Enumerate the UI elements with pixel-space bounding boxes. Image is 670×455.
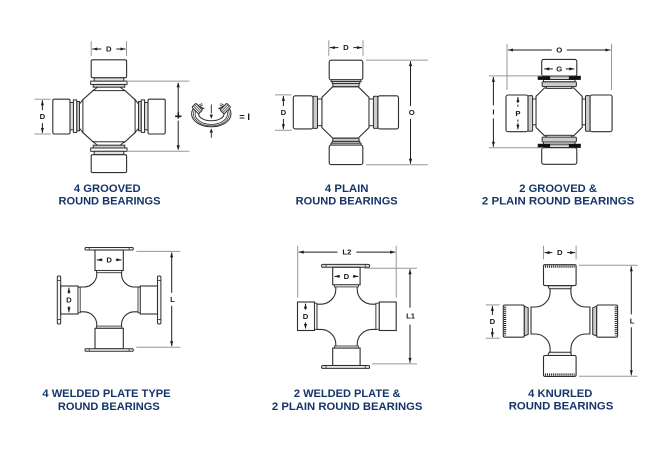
svg-text:4 WELDED PLATE TYPE: 4 WELDED PLATE TYPE — [42, 388, 170, 400]
svg-text:I: I — [492, 108, 494, 117]
svg-text:D: D — [106, 256, 112, 265]
svg-text:2 GROOVED &: 2 GROOVED & — [519, 183, 597, 195]
svg-text:ROUND BEARINGS: ROUND BEARINGS — [296, 196, 398, 208]
svg-text:L1: L1 — [406, 312, 416, 321]
svg-text:D: D — [343, 43, 349, 52]
svg-text:4 KNURLED: 4 KNURLED — [528, 388, 592, 400]
svg-text:D: D — [106, 45, 112, 54]
svg-text:D: D — [557, 248, 563, 257]
svg-text:D: D — [490, 317, 496, 326]
svg-text:4 GROOVED: 4 GROOVED — [74, 183, 141, 195]
svg-text:D: D — [40, 112, 46, 121]
svg-text:L: L — [630, 316, 635, 325]
svg-text:= I: = I — [239, 112, 250, 123]
svg-text:L2: L2 — [342, 248, 351, 257]
svg-text:D: D — [66, 296, 72, 305]
svg-text:ROUND BEARINGS: ROUND BEARINGS — [59, 196, 161, 208]
svg-text:D: D — [344, 272, 350, 281]
svg-text:2 PLAIN ROUND BEARINGS: 2 PLAIN ROUND BEARINGS — [482, 196, 634, 208]
svg-text:G: G — [556, 65, 562, 74]
svg-text:P: P — [515, 109, 520, 118]
svg-text:D: D — [303, 312, 309, 321]
svg-text:2 PLAIN ROUND BEARINGS: 2 PLAIN ROUND BEARINGS — [272, 401, 423, 413]
svg-text:2 WELDED PLATE &: 2 WELDED PLATE & — [294, 388, 401, 400]
svg-text:L: L — [170, 295, 175, 304]
svg-text:O: O — [556, 46, 562, 55]
svg-text:ROUND BEARINGS: ROUND BEARINGS — [58, 401, 160, 413]
svg-text:4 PLAIN: 4 PLAIN — [325, 183, 369, 195]
svg-text:D: D — [281, 108, 287, 117]
svg-text:ROUND BEARINGS: ROUND BEARINGS — [509, 401, 614, 413]
svg-text:O: O — [409, 108, 415, 117]
